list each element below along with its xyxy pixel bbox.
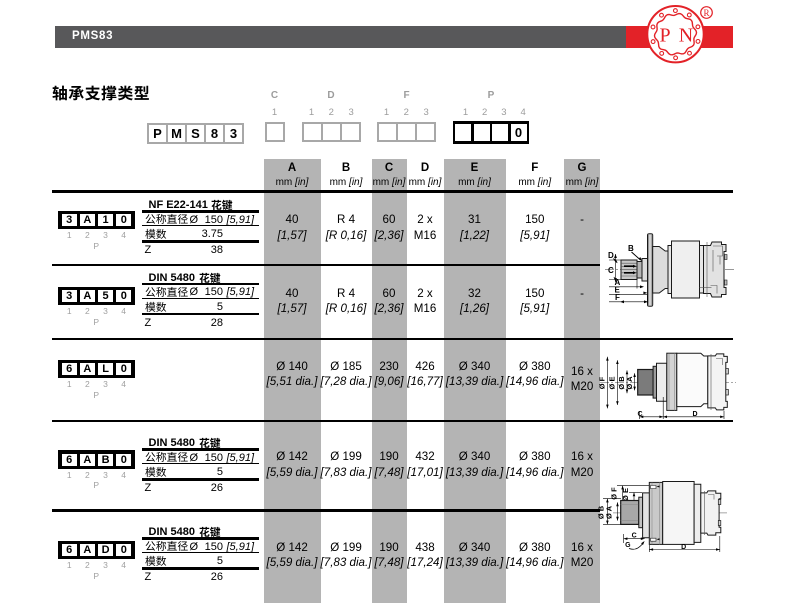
svg-text:R: R xyxy=(703,8,709,18)
svg-text:G: G xyxy=(625,542,631,549)
svg-text:D: D xyxy=(681,544,686,551)
svg-text:D: D xyxy=(608,251,614,260)
svg-text:Ø A: Ø A xyxy=(625,376,634,390)
svg-text:Ø F: Ø F xyxy=(598,376,607,389)
svg-text:N: N xyxy=(679,25,693,47)
svg-text:P: P xyxy=(659,25,670,47)
svg-text:C: C xyxy=(637,411,642,418)
svg-text:Ø E: Ø E xyxy=(608,377,617,390)
svg-text:Ø F: Ø F xyxy=(610,487,619,500)
svg-text:B: B xyxy=(628,244,634,253)
svg-text:F: F xyxy=(615,293,620,302)
svg-text:D: D xyxy=(692,411,697,418)
svg-text:Ø E: Ø E xyxy=(621,488,630,501)
svg-text:Ø A: Ø A xyxy=(605,505,614,519)
svg-text:C: C xyxy=(632,532,637,539)
svg-text:C: C xyxy=(608,266,614,275)
